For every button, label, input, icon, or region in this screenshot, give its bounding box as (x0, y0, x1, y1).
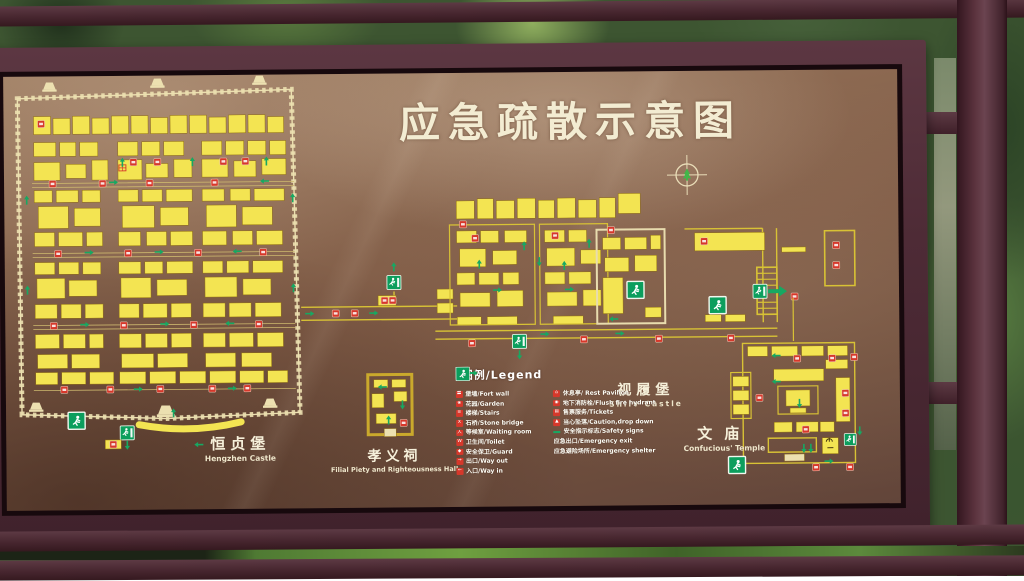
emergency-shelter-icon (728, 456, 745, 473)
stone-bridge-icon: X (456, 420, 463, 427)
emergency-exit-icon (387, 275, 401, 289)
legend-header: 图例/Legend (462, 365, 656, 383)
emergency-shelter-icon (627, 281, 644, 298)
sign-title: 应急疏散示意图 (355, 86, 786, 150)
way-in-icon: ← (457, 468, 464, 475)
sign-board: 应急疏散示意图 恒贞堡 Hengzhen Castle 孝义祠 Filial P… (0, 40, 930, 540)
legend-item-stone-bridge: X石桥/Stone bridge (456, 419, 543, 427)
tickets-icon: ▤ (553, 410, 560, 417)
legend-item-emergency-shelter: 应急避险场所/Emergency shelter (554, 448, 657, 456)
fire-hydrant-icon: ◉ (553, 400, 560, 407)
legend-item-garden: ❀花园/Garden (456, 400, 543, 408)
emergency-exit-icon (753, 284, 767, 298)
green-arrow-icon (125, 441, 130, 450)
shilv-castle (596, 229, 665, 324)
emergency-exit-icon (844, 433, 856, 445)
legend-item-guard: ◆安全保卫/Guard (456, 448, 543, 456)
label-hengzhen-castle: 恒贞堡 Hengzhen Castle (174, 432, 306, 463)
hengzhen-castle (17, 75, 300, 419)
way-out-icon: → (456, 458, 463, 465)
legend-right-column: ⌂休息亭/ Rest Pavilion ◉地下消防栓/Flush fire hy… (553, 389, 656, 476)
compass-icon (667, 155, 707, 195)
emergency-shelter-icon (709, 297, 726, 314)
legend-columns: 〓堡墙/Fort wall ❀花园/Garden ≡楼梯/Stairs X石桥/… (456, 389, 657, 477)
sign-panel: 应急疏散示意图 恒贞堡 Hengzhen Castle 孝义祠 Filial P… (3, 69, 901, 511)
legend-item-toilet: W卫生间/Toilet (456, 438, 543, 446)
sign-board-inner-frame: 应急疏散示意图 恒贞堡 Hengzhen Castle 孝义祠 Filial P… (0, 64, 906, 516)
legend: 图例/Legend 〓堡墙/Fort wall ❀花园/Garden ≡楼梯/S… (456, 365, 657, 477)
emergency-shelter-icon (456, 367, 470, 381)
legend-item-waiting-room: 人等候室/Waiting room (456, 429, 543, 437)
label-xiaoyi-shrine: 孝义祠 Filial Piety and Righteousness Hall (316, 445, 472, 474)
green-arrow-icon (391, 262, 396, 271)
stairs-icon: ≡ (456, 410, 463, 417)
emergency-shelter-icon (68, 412, 85, 429)
guard-icon: ◆ (456, 449, 463, 456)
legend-item-stairs: ≡楼梯/Stairs (456, 409, 543, 417)
legend-item-rest-pavilion: ⌂休息亭/ Rest Pavilion (553, 389, 656, 397)
xiaoyi-shrine (367, 262, 413, 436)
waiting-room-icon: 人 (456, 430, 463, 437)
legend-item-way-out: →出口/Way out (456, 457, 543, 465)
rest-pavilion-icon: ⌂ (553, 390, 560, 397)
toilet-icon: W (456, 439, 463, 446)
legend-item-safety-signs: 安全指示标志/Safety signs (554, 428, 657, 436)
legend-item-fire-hydrant: ◉地下消防栓/Flush fire hydrant (553, 399, 656, 407)
garden-icon: ❀ (456, 401, 463, 408)
legend-left-column: 〓堡墙/Fort wall ❀花园/Garden ≡楼梯/Stairs X石桥/… (456, 390, 544, 477)
fort-wall-icon: 〓 (456, 391, 463, 398)
red-map-icon (110, 441, 117, 448)
legend-item-tickets: ▤售票服务/Tickets (553, 408, 656, 416)
east-section (684, 227, 855, 341)
emergency-exit-icon (512, 334, 526, 348)
fence-rail-bottom-2 (0, 555, 1024, 580)
center-complex (434, 192, 777, 360)
emergency-exit-icon (120, 426, 134, 440)
legend-item-caution: ▲当心坠落/Caution,drop down (554, 418, 657, 426)
hengzhen-buildings (33, 114, 287, 384)
support-post-right (957, 0, 1007, 576)
caution-drop-icon: ▲ (554, 419, 561, 426)
legend-item-way-in: ←入口/Way in (457, 467, 544, 475)
legend-item-fort-wall: 〓堡墙/Fort wall (456, 390, 543, 398)
safety-sign-icon (554, 431, 561, 434)
connecting-corridor (301, 306, 457, 320)
legend-item-emergency-exit: 应急出口/Emergency exit (554, 438, 657, 446)
confucius-temple (727, 342, 862, 473)
label-confucius-temple: 文庙 Confucious' Temple (666, 422, 782, 453)
